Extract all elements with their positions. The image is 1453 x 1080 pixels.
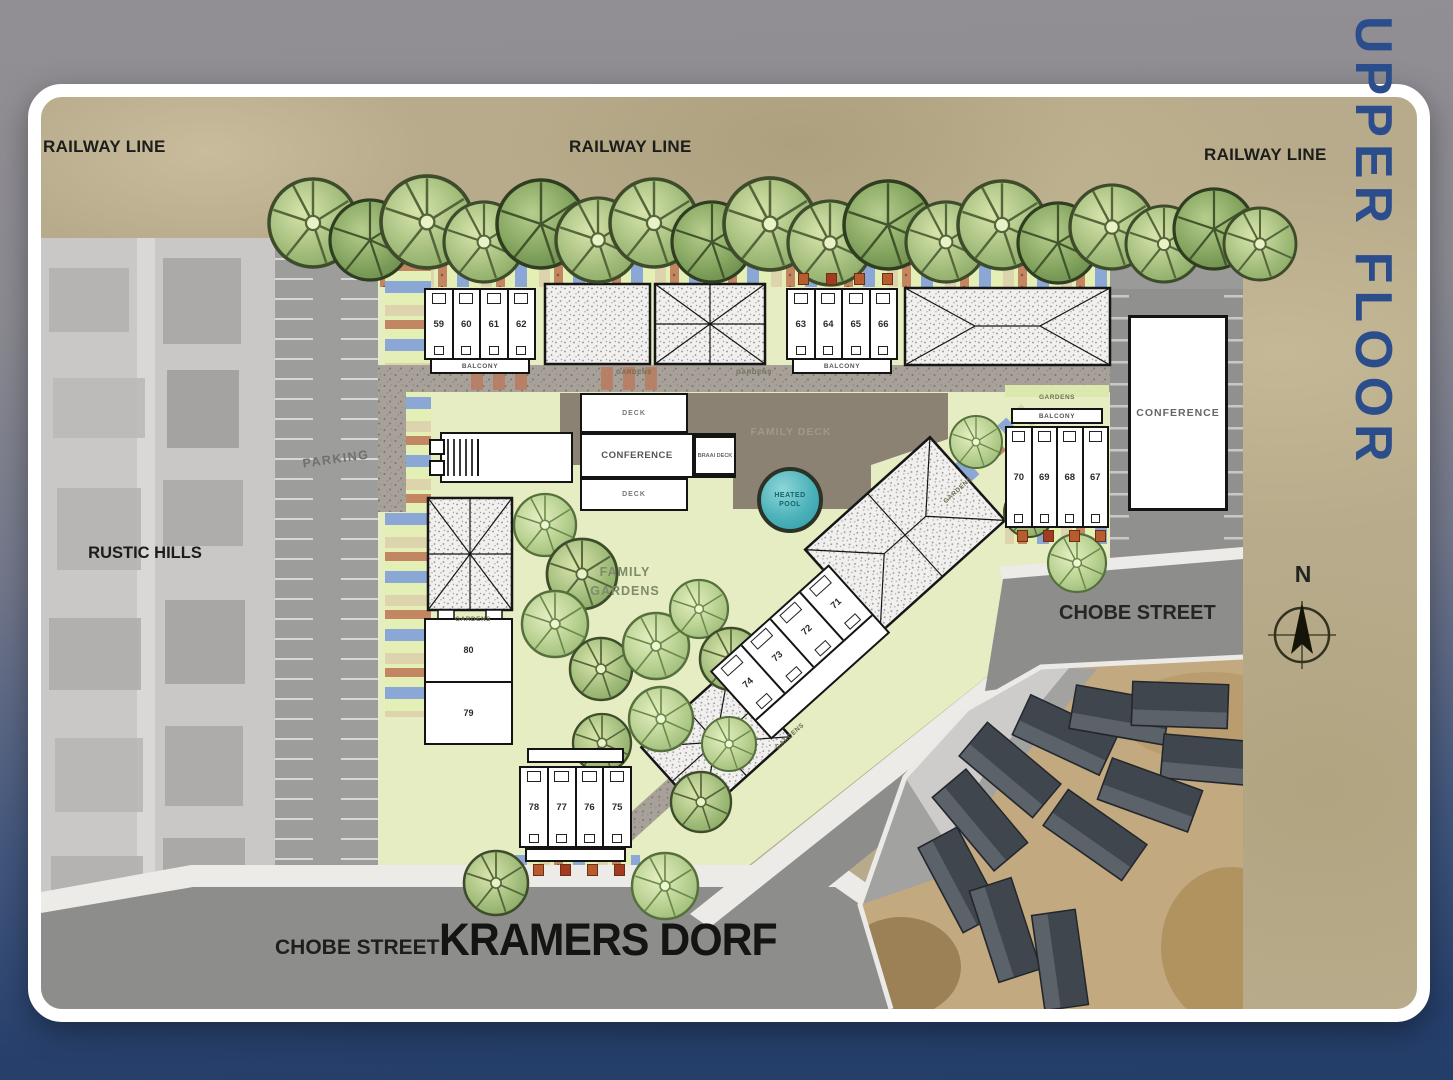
compass-north-label: N <box>1288 561 1318 588</box>
deck-room-bottom: DECK <box>580 478 688 511</box>
project-title: KRAMERS DORF <box>439 914 743 966</box>
chobe-street-label-south: CHOBE STREET <box>275 936 439 960</box>
planter-pot <box>533 864 544 876</box>
entrance-drive <box>378 392 406 512</box>
planter-pot <box>798 273 809 285</box>
family-gardens-label: FAMILY GARDENS <box>581 563 669 602</box>
unit-64: 64 <box>816 290 844 358</box>
unit-68: 68 <box>1058 428 1084 526</box>
unit-61: 61 <box>481 290 509 358</box>
deck-label: DECK <box>622 410 646 417</box>
heated-pool: HEATED POOL <box>757 467 823 533</box>
unit-69: 69 <box>1033 428 1059 526</box>
unit-70: 70 <box>1007 428 1033 526</box>
compass-rose <box>1268 601 1336 669</box>
unit-block-75-78: 78 77 76 75 <box>519 766 632 848</box>
unit-76: 76 <box>577 768 605 846</box>
unit-block-63-66: 63 64 65 66 <box>786 288 898 360</box>
gardens-label: GARDENS <box>448 616 498 623</box>
unit-60: 60 <box>454 290 482 358</box>
family-deck-label: FAMILY DECK <box>741 426 841 438</box>
unit-63: 63 <box>788 290 816 358</box>
unit-78: 78 <box>521 768 549 846</box>
chobe-street-label-east: CHOBE STREET <box>1059 602 1209 625</box>
site-plan-graphics <box>41 97 1417 1009</box>
unit-62: 62 <box>509 290 535 358</box>
conference-label: CONFERENCE <box>601 450 673 461</box>
unit-66: 66 <box>871 290 897 358</box>
stair-hatch <box>447 439 479 476</box>
gardens-label: GARDENS <box>1007 394 1107 401</box>
conference-hall-east: CONFERENCE <box>1128 315 1228 511</box>
unit-67: 67 <box>1084 428 1108 526</box>
railway-line-label-right: RAILWAY LINE <box>1204 145 1327 165</box>
planter-pot <box>1069 530 1080 542</box>
rustic-hills-label: RUSTIC HILLS <box>75 544 215 563</box>
upper-floor-label: UPPER FLOOR <box>1334 16 1412 546</box>
unit-75: 75 <box>604 768 630 846</box>
unit-59: 59 <box>426 290 454 358</box>
unit-79: 79 <box>426 683 511 744</box>
unit-77: 77 <box>549 768 577 846</box>
planter-pot <box>1043 530 1054 542</box>
planter-pot <box>560 864 571 876</box>
deck-label: DECK <box>622 491 646 498</box>
unit-block-79-80: 80 79 <box>424 618 513 745</box>
gardens-label: GARDENS <box>729 369 779 376</box>
unit-80: 80 <box>426 620 511 683</box>
balcony-strip-67-70: BALCONY <box>1011 408 1103 424</box>
unit-block-59-62: 59 60 61 62 <box>424 288 536 360</box>
conference-label: CONFERENCE <box>1136 407 1220 419</box>
planter-pot <box>1095 530 1106 542</box>
balcony-strip-59-62: BALCONY <box>430 358 530 374</box>
gardens-label: GARDENS <box>609 369 659 376</box>
reception-wing <box>440 432 573 483</box>
planter-pot <box>1017 530 1028 542</box>
planter-pot <box>854 273 865 285</box>
planter-pot <box>614 864 625 876</box>
braai-deck-room: BRAAI DECK <box>694 433 736 478</box>
site-plan-card: 59 60 61 62 BALCONY 63 64 65 66 BA <box>28 84 1430 1022</box>
planter-pot <box>587 864 598 876</box>
planter-pot <box>826 273 837 285</box>
deck-room-top: DECK <box>580 393 688 433</box>
presentation-slide: 59 60 61 62 BALCONY 63 64 65 66 BA <box>0 0 1453 1080</box>
balcony-tab <box>527 748 624 763</box>
balcony-tab <box>525 848 626 862</box>
planter-pot <box>882 273 893 285</box>
railway-line-label-center: RAILWAY LINE <box>569 137 692 157</box>
unit-block-67-70: 70 69 68 67 <box>1005 426 1109 528</box>
braai-deck-label: BRAAI DECK <box>698 453 733 459</box>
conference-building: CONFERENCE <box>580 433 694 478</box>
railway-line-label-left: RAILWAY LINE <box>43 137 166 157</box>
site-plan: 59 60 61 62 BALCONY 63 64 65 66 BA <box>41 97 1417 1009</box>
unit-65: 65 <box>843 290 871 358</box>
balcony-strip-63-66: BALCONY <box>792 358 892 374</box>
